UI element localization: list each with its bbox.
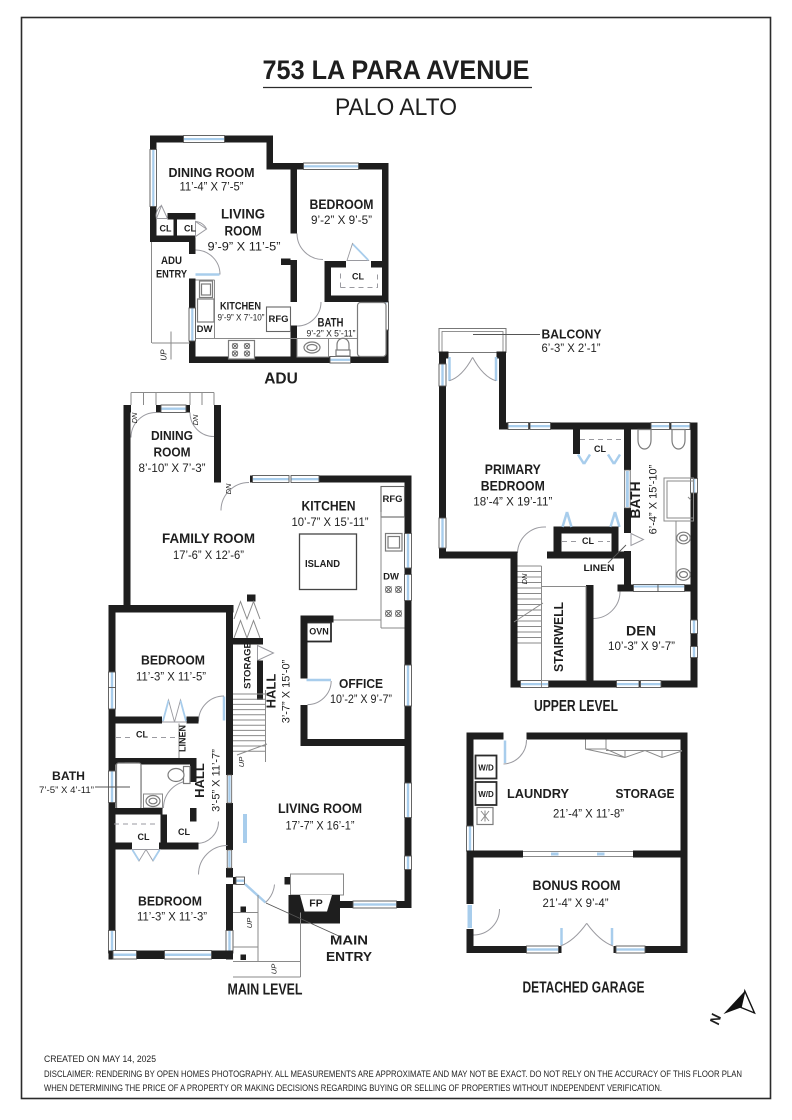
svg-text:ISLAND: ISLAND (305, 558, 340, 570)
svg-text:KITCHEN: KITCHEN (302, 499, 356, 514)
svg-text:10’-2” X 9’-7”: 10’-2” X 9’-7” (330, 694, 392, 706)
svg-text:LIVING ROOM: LIVING ROOM (278, 801, 362, 816)
svg-text:BATH: BATH (52, 769, 85, 783)
svg-text:DEN: DEN (626, 623, 656, 639)
svg-text:ENTRY: ENTRY (326, 949, 372, 964)
svg-text:CL: CL (352, 272, 364, 282)
svg-text:BEDROOM: BEDROOM (310, 197, 374, 212)
svg-text:6’-4” X 15’-10”: 6’-4” X 15’-10” (648, 464, 660, 534)
svg-text:DN: DN (191, 414, 200, 425)
svg-text:BEDROOM: BEDROOM (481, 478, 545, 494)
svg-text:DINING ROOM: DINING ROOM (169, 165, 255, 180)
svg-text:UP: UP (245, 918, 254, 928)
svg-text:CL: CL (136, 730, 148, 740)
svg-text:MAIN LEVEL: MAIN LEVEL (228, 982, 303, 999)
svg-text:CL: CL (184, 224, 196, 234)
svg-text:CL: CL (138, 832, 150, 842)
svg-text:DETACHED GARAGE: DETACHED GARAGE (523, 980, 645, 997)
svg-text:FAMILY ROOM: FAMILY ROOM (162, 531, 255, 546)
svg-text:CREATED ON MAY 14, 2025: CREATED ON MAY 14, 2025 (44, 1054, 156, 1064)
svg-text:PRIMARY: PRIMARY (485, 461, 542, 477)
svg-text:ADU: ADU (161, 255, 182, 267)
svg-text:ADU: ADU (264, 371, 298, 388)
svg-text:LINEN: LINEN (178, 725, 188, 752)
svg-text:UP: UP (237, 757, 246, 767)
svg-text:6’-3” X 2’-1”: 6’-3” X 2’-1” (542, 343, 601, 355)
svg-text:11’-4” X 7’-5”: 11’-4” X 7’-5” (180, 182, 244, 194)
svg-text:ENTRY: ENTRY (156, 269, 188, 281)
svg-text:BATH: BATH (318, 316, 344, 330)
svg-text:DN: DN (130, 412, 139, 423)
svg-text:DISCLAIMER: RENDERING BY OPEN: DISCLAIMER: RENDERING BY OPEN HOMES PHOT… (44, 1069, 742, 1079)
svg-text:BALCONY: BALCONY (542, 327, 602, 342)
svg-text:UPPER LEVEL: UPPER LEVEL (534, 698, 618, 715)
svg-text:18’-4” X 19’-11”: 18’-4” X 19’-11” (473, 497, 552, 509)
svg-text:OVN: OVN (309, 627, 329, 637)
svg-text:STORAGE: STORAGE (616, 786, 675, 801)
svg-text:HALL: HALL (192, 763, 207, 798)
svg-text:BEDROOM: BEDROOM (138, 894, 202, 909)
svg-text:BONUS ROOM: BONUS ROOM (533, 878, 621, 893)
svg-text:9’-2” X 9’-5”: 9’-2” X 9’-5” (311, 215, 372, 227)
svg-text:3’-5” X 11’-7”: 3’-5” X 11’-7” (211, 749, 223, 812)
svg-text:17’-6” X 12’-6”: 17’-6” X 12’-6” (173, 550, 244, 562)
svg-text:DN: DN (520, 573, 529, 584)
svg-text:N: N (706, 1012, 724, 1027)
svg-text:OFFICE: OFFICE (339, 676, 383, 691)
svg-text:21’-4” X 9’-4”: 21’-4” X 9’-4” (543, 898, 609, 910)
svg-text:ROOM: ROOM (225, 223, 262, 239)
svg-text:W/D: W/D (478, 764, 494, 773)
svg-text:17’-7” X 16’-1”: 17’-7” X 16’-1” (286, 821, 355, 833)
svg-text:RFG: RFG (382, 494, 402, 505)
svg-text:9’-9” X 7’-10”: 9’-9” X 7’-10” (218, 313, 265, 324)
svg-text:BATH: BATH (627, 482, 643, 519)
svg-text:LIVING: LIVING (221, 206, 265, 222)
svg-text:RFG: RFG (268, 314, 288, 325)
svg-text:DW: DW (383, 572, 399, 583)
svg-text:FP: FP (309, 898, 322, 910)
svg-text:CL: CL (582, 536, 594, 546)
svg-text:ROOM: ROOM (154, 446, 191, 460)
svg-text:UP: UP (160, 349, 169, 361)
svg-text:KITCHEN: KITCHEN (220, 301, 261, 313)
svg-text:7’-5” X 4’-11”: 7’-5” X 4’-11” (39, 785, 94, 796)
svg-text:WHEN DETERMINING THE PRICE OF: WHEN DETERMINING THE PRICE OF A PROPERTY… (44, 1083, 662, 1093)
svg-text:10’-7” X 15’-11”: 10’-7” X 15’-11” (292, 517, 369, 529)
svg-text:CL: CL (160, 224, 172, 234)
svg-text:UP: UP (270, 964, 279, 974)
svg-text:DINING: DINING (151, 429, 193, 443)
svg-text:9’-9” X 11’-5”: 9’-9” X 11’-5” (208, 242, 281, 254)
svg-text:753 LA PARA AVENUE: 753 LA PARA AVENUE (263, 55, 530, 85)
svg-text:STAIRWELL: STAIRWELL (551, 602, 566, 672)
svg-text:11’-3” X 11’-5”: 11’-3” X 11’-5” (136, 672, 206, 684)
svg-text:MAIN: MAIN (330, 933, 368, 948)
svg-text:CL: CL (178, 827, 190, 837)
svg-text:8’-10” X 7’-3”: 8’-10” X 7’-3” (139, 463, 206, 475)
svg-text:10’-3” X 9’-7”: 10’-3” X 9’-7” (608, 641, 675, 653)
svg-text:LINEN: LINEN (584, 563, 615, 574)
svg-text:LAUNDRY: LAUNDRY (507, 786, 569, 801)
svg-text:BEDROOM: BEDROOM (141, 653, 205, 668)
svg-text:W/D: W/D (478, 790, 494, 799)
svg-text:21’-4” X 11’-8”: 21’-4” X 11’-8” (553, 809, 624, 821)
svg-text:11’-3” X 11’-3”: 11’-3” X 11’-3” (137, 912, 207, 924)
svg-text:STORAGE: STORAGE (243, 642, 254, 689)
svg-text:DN: DN (224, 483, 233, 494)
svg-text:DW: DW (197, 324, 213, 335)
svg-text:9’-2” X 5’-11”: 9’-2” X 5’-11” (307, 329, 356, 340)
svg-text:3’-7” X 15’-0”: 3’-7” X 15’-0” (281, 659, 293, 723)
svg-text:CL: CL (594, 444, 606, 454)
svg-text:HALL: HALL (264, 674, 279, 709)
svg-text:PALO ALTO: PALO ALTO (335, 94, 457, 121)
